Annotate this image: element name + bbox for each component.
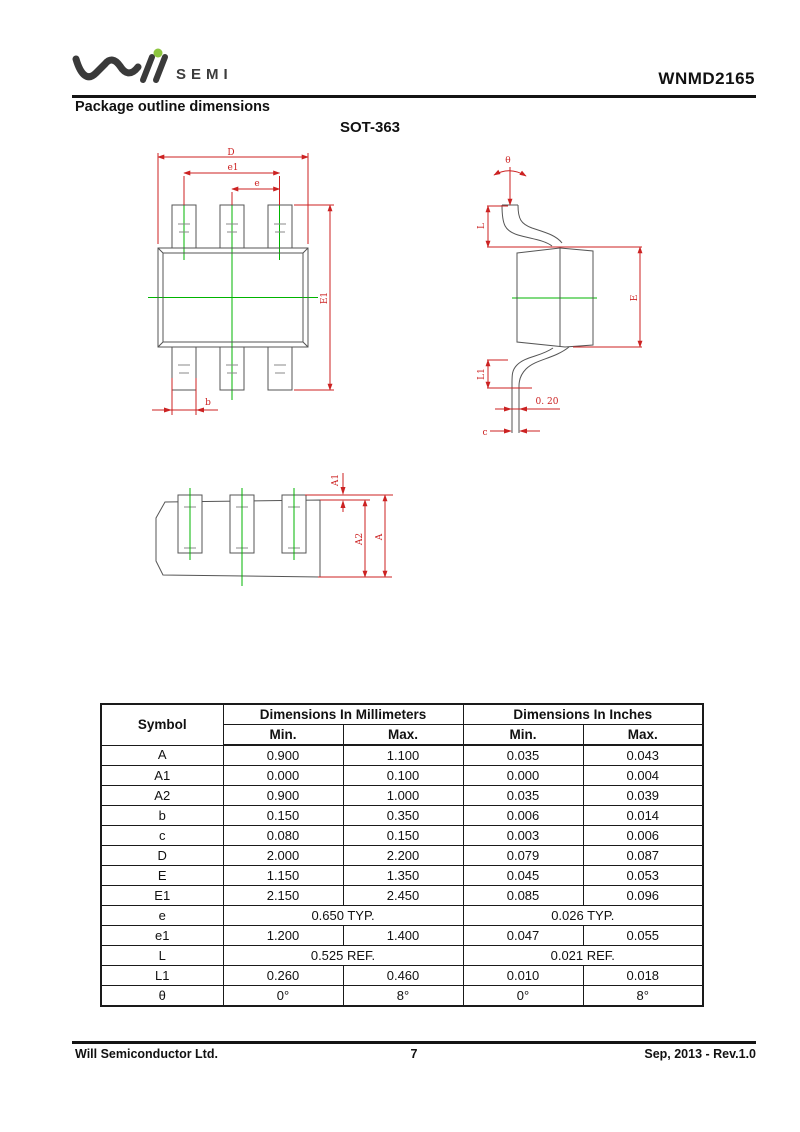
b-arrow-left: [164, 408, 172, 413]
col-header-mm-group: Dimensions In Millimeters: [223, 704, 463, 725]
col-header-in-max: Max.: [583, 725, 703, 746]
header-rule: [72, 95, 756, 98]
will-semi-logo: SEMI: [72, 48, 252, 93]
inch-max-cell: 0.018: [583, 966, 703, 986]
symbol-cell: A1: [101, 766, 223, 786]
mm-span-cell: 0.650 TYP.: [223, 906, 463, 926]
symbol-cell: b: [101, 806, 223, 826]
symbol-cell: E1: [101, 886, 223, 906]
symbol-cell: A2: [101, 786, 223, 806]
c-arrow-right: [519, 429, 527, 434]
dim-label-e: e: [254, 179, 259, 189]
dim-label-e1: e1: [227, 163, 238, 173]
symbol-cell: A: [101, 745, 223, 766]
mm-min-cell: 0.900: [223, 745, 343, 766]
mm-span-cell: 0.525 REF.: [223, 946, 463, 966]
inch-min-cell: 0.047: [463, 926, 583, 946]
dim-label-E: E: [630, 295, 640, 302]
symbol-cell: E: [101, 866, 223, 886]
logo-green-dot: [154, 49, 163, 58]
mm-max-cell: 0.350: [343, 806, 463, 826]
pin-center-lines: [190, 488, 294, 586]
a1-arrow-down: [341, 487, 346, 495]
dim-label-L1: L1: [477, 368, 487, 380]
dimension-lines: [305, 473, 393, 577]
mm-max-cell: 8°: [343, 986, 463, 1007]
inch-min-cell: 0.000: [463, 766, 583, 786]
package-side-view-drawing: θ L E L1 0. 20 c: [450, 145, 670, 445]
col-header-in-min: Min.: [463, 725, 583, 746]
mm-max-cell: 1.100: [343, 745, 463, 766]
dim-label-A: A: [375, 533, 385, 541]
table-row: A10.0000.1000.0000.004: [101, 766, 703, 786]
inch-max-cell: 0.043: [583, 745, 703, 766]
mm-max-cell: 2.200: [343, 846, 463, 866]
mm-max-cell: 1.000: [343, 786, 463, 806]
inch-max-cell: 0.096: [583, 886, 703, 906]
table-row: c0.0800.1500.0030.006: [101, 826, 703, 846]
lower-lead: [512, 347, 569, 433]
table-row: b0.1500.3500.0060.014: [101, 806, 703, 826]
inch-max-cell: 0.087: [583, 846, 703, 866]
logo-wave-mark: [76, 49, 165, 81]
package-name: SOT-363: [300, 119, 440, 136]
table-row: e11.2001.4000.0470.055: [101, 926, 703, 946]
col-header-symbol: Symbol: [101, 704, 223, 745]
inch-max-cell: 0.039: [583, 786, 703, 806]
mm-max-cell: 1.350: [343, 866, 463, 886]
dim-label-b: b: [205, 398, 211, 408]
col-header-mm-max: Max.: [343, 725, 463, 746]
table-row: L10.2600.4600.0100.018: [101, 966, 703, 986]
footer-date-revision: Sep, 2013 - Rev.1.0: [644, 1047, 756, 1061]
inch-min-cell: 0.079: [463, 846, 583, 866]
package-front-view-drawing: A1 A2 A: [140, 440, 400, 600]
inch-min-cell: 0.085: [463, 886, 583, 906]
dim-label-L: L: [477, 223, 487, 229]
dim-label-D: D: [227, 148, 234, 158]
mm-min-cell: 0.080: [223, 826, 343, 846]
dimension-table: Symbol Dimensions In Millimeters Dimensi…: [100, 703, 704, 1007]
package-top-view-drawing: D e1 e E1 b: [138, 148, 368, 423]
dim-label-E1: E1: [320, 292, 330, 304]
mm-min-cell: 0.900: [223, 786, 343, 806]
inch-min-cell: 0.045: [463, 866, 583, 886]
upper-lead: [502, 205, 562, 246]
mm-min-cell: 0.260: [223, 966, 343, 986]
dimension-table-body: A0.9001.1000.0350.043A10.0000.1000.0000.…: [101, 745, 703, 1006]
dimension-table-container: Symbol Dimensions In Millimeters Dimensi…: [100, 703, 704, 1007]
tip-arrow-right: [519, 407, 527, 412]
mm-min-cell: 0.000: [223, 766, 343, 786]
inch-min-cell: 0.035: [463, 786, 583, 806]
dim-label-A1: A1: [331, 474, 341, 487]
dim-label-c: c: [482, 428, 487, 438]
mm-max-cell: 2.450: [343, 886, 463, 906]
inch-min-cell: 0.010: [463, 966, 583, 986]
table-row: θ0°8°0°8°: [101, 986, 703, 1007]
mm-min-cell: 2.000: [223, 846, 343, 866]
mm-min-cell: 1.200: [223, 926, 343, 946]
inch-max-cell: 0.053: [583, 866, 703, 886]
table-row: A0.9001.1000.0350.043: [101, 745, 703, 766]
col-header-mm-min: Min.: [223, 725, 343, 746]
symbol-cell: L: [101, 946, 223, 966]
inch-min-cell: 0.035: [463, 745, 583, 766]
symbol-cell: θ: [101, 986, 223, 1007]
table-row: E1.1501.3500.0450.053: [101, 866, 703, 886]
mm-min-cell: 0°: [223, 986, 343, 1007]
inch-min-cell: 0°: [463, 986, 583, 1007]
c-arrow-left: [504, 429, 512, 434]
a1-arrow-up: [341, 500, 346, 508]
b-arrow-right: [196, 408, 204, 413]
mm-min-cell: 2.150: [223, 886, 343, 906]
inch-max-cell: 0.014: [583, 806, 703, 826]
symbol-cell: e: [101, 906, 223, 926]
symbol-cell: e1: [101, 926, 223, 946]
footer-rule: [72, 1041, 756, 1044]
table-row: e0.650 TYP.0.026 TYP.: [101, 906, 703, 926]
table-row: D2.0002.2000.0790.087: [101, 846, 703, 866]
mm-max-cell: 0.460: [343, 966, 463, 986]
mm-min-cell: 1.150: [223, 866, 343, 886]
inch-max-cell: 0.006: [583, 826, 703, 846]
inch-span-cell: 0.026 TYP.: [463, 906, 703, 926]
mm-max-cell: 0.150: [343, 826, 463, 846]
mm-max-cell: 1.400: [343, 926, 463, 946]
mm-max-cell: 0.100: [343, 766, 463, 786]
logo-suffix-text: SEMI: [176, 66, 233, 83]
mm-min-cell: 0.150: [223, 806, 343, 826]
inch-max-cell: 0.055: [583, 926, 703, 946]
part-number: WNMD2165: [658, 69, 755, 89]
tip-arrow-left: [504, 407, 512, 412]
symbol-cell: L1: [101, 966, 223, 986]
col-header-inch-group: Dimensions In Inches: [463, 704, 703, 725]
dimension-lines: [152, 153, 334, 415]
dimension-lines: [487, 167, 642, 431]
dim-label-theta: θ: [505, 156, 510, 166]
inch-max-cell: 0.004: [583, 766, 703, 786]
dim-label-A2: A2: [355, 533, 365, 546]
inch-max-cell: 8°: [583, 986, 703, 1007]
inch-span-cell: 0.021 REF.: [463, 946, 703, 966]
datasheet-page: SEMI WNMD2165 Package outline dimensions…: [0, 0, 800, 1132]
section-title: Package outline dimensions: [75, 99, 270, 115]
dim-label-tip: 0. 20: [536, 397, 559, 407]
symbol-cell: D: [101, 846, 223, 866]
inch-min-cell: 0.003: [463, 826, 583, 846]
table-row: E12.1502.4500.0850.096: [101, 886, 703, 906]
table-row: A20.9001.0000.0350.039: [101, 786, 703, 806]
table-row: L0.525 REF.0.021 REF.: [101, 946, 703, 966]
symbol-cell: c: [101, 826, 223, 846]
inch-min-cell: 0.006: [463, 806, 583, 826]
